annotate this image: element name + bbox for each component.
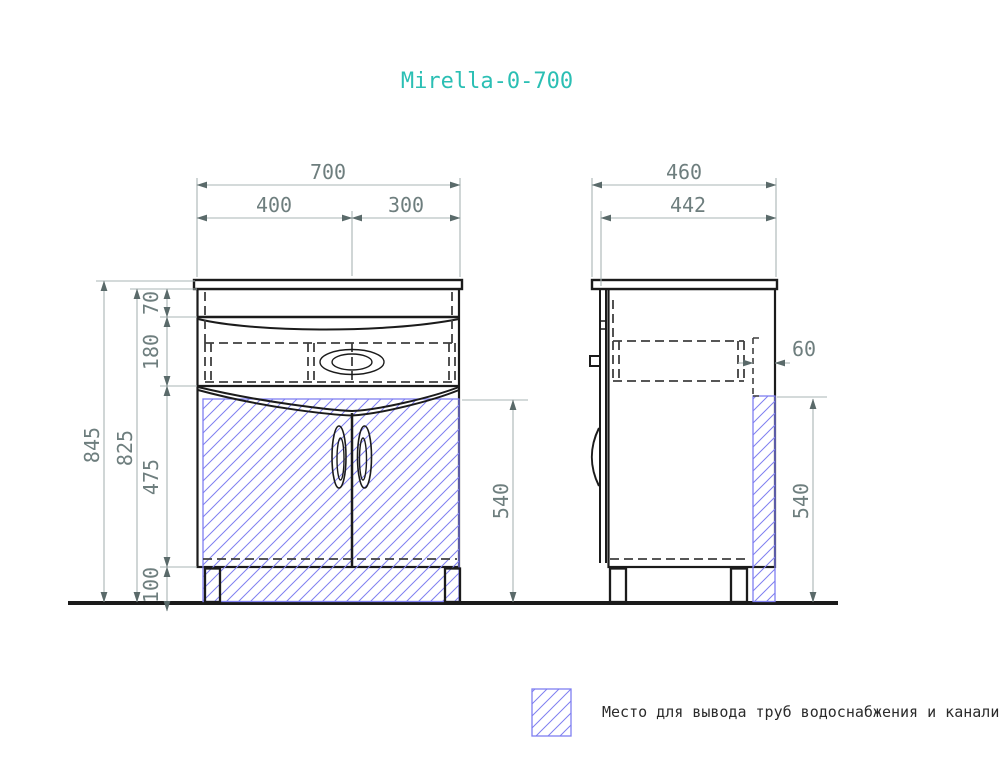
- side-leg-back: [731, 569, 747, 603]
- side-pipe-zone-hatch: [753, 396, 775, 602]
- legend-label: Место для вывода труб водоснабжения и ка…: [602, 703, 1000, 721]
- front-view: [194, 280, 462, 602]
- dim-front-door-section: 475: [139, 459, 163, 495]
- dim-side-total-depth: 460: [666, 160, 702, 184]
- side-door-arc: [592, 428, 599, 486]
- side-cabinet-body: [609, 289, 776, 567]
- dim-front-overall-height: 845: [80, 427, 104, 463]
- dim-front-top-section: 70: [139, 291, 163, 315]
- dim-side-pipe-zone-width: 60: [792, 337, 816, 361]
- side-door-front: [600, 289, 606, 563]
- front-countertop: [194, 280, 462, 289]
- drawing-canvas: Mirella-0-700: [0, 0, 1000, 769]
- dim-front-plinth-height: 100: [139, 567, 163, 603]
- legend-hatch-swatch: [532, 689, 571, 736]
- technical-drawing-svg: Mirella-0-700: [0, 0, 1000, 769]
- dim-front-right-width: 300: [388, 193, 424, 217]
- side-countertop: [592, 280, 777, 289]
- side-view: [590, 280, 777, 602]
- hatch-legend: Место для вывода труб водоснабжения и ка…: [532, 689, 1000, 736]
- dim-side-pipe-zone-height: 540: [789, 483, 813, 519]
- dim-front-body-height: 825: [113, 430, 137, 466]
- dim-front-pipe-zone-height: 540: [489, 483, 513, 519]
- front-pipe-zone-hatch: [203, 399, 459, 602]
- side-drawer-handle: [590, 356, 600, 366]
- drawing-title: Mirella-0-700: [401, 69, 573, 94]
- side-leg-front: [610, 569, 626, 603]
- dim-front-left-width: 400: [256, 193, 292, 217]
- dim-front-drawer-section: 180: [139, 334, 163, 370]
- dim-front-total-width: 700: [310, 160, 346, 184]
- dim-side-body-depth: 442: [670, 193, 706, 217]
